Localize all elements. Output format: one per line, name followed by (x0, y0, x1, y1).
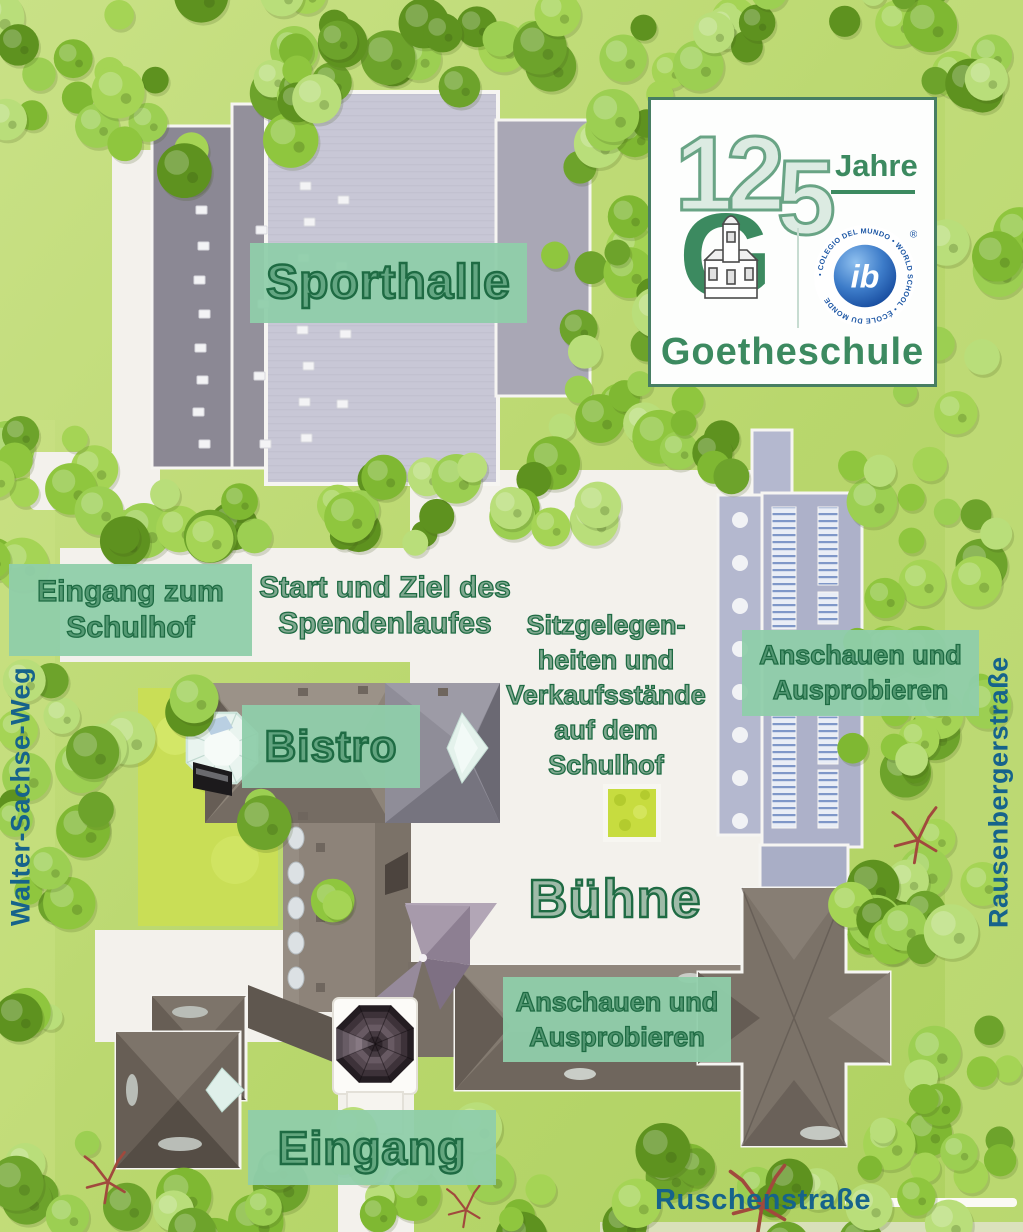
label-line: Eingang zum (37, 574, 224, 610)
street-name: Rausenbergerstraße (984, 656, 1015, 928)
label-entrance-courtyard: Eingang zum Schulhof (9, 564, 252, 656)
anniversary-badge: 125 Jahre G • COLEGIO DEL MUNDO • WORLD … (648, 97, 937, 387)
label-seating: Sitzgelegen- heiten und Verkaufsstände a… (500, 608, 712, 783)
label-look-try-east: Anschauen und Ausprobieren (742, 630, 979, 716)
label-line: Anschauen und (516, 985, 719, 1020)
ib-registered-mark: ® (910, 230, 917, 241)
badge-underline (831, 190, 915, 194)
label-stage-text: Bühne (505, 872, 725, 926)
street-walter-sachse-weg: Walter-Sachse-Weg (2, 650, 40, 942)
label-line: Ausprobieren (529, 1020, 705, 1055)
tower-roof (336, 1005, 414, 1083)
street-ruschenstrasse: Ruschenstraße (655, 1184, 870, 1217)
label-sporthalle: Sporthalle (250, 243, 527, 323)
street-name: Walter-Sachse-Weg (6, 666, 37, 925)
badge-divider (797, 228, 799, 328)
label-line: heiten und (500, 643, 712, 678)
label-line: auf dem (500, 713, 712, 748)
label-line: Anschauen und (759, 638, 962, 673)
label-sporthalle-text: Sporthalle (266, 259, 511, 307)
label-look-try-south: Anschauen und Ausprobieren (503, 977, 731, 1062)
ib-text: ib (851, 258, 880, 294)
campus-map: Sporthalle Eingang zum Schulhof Start un… (0, 0, 1023, 1232)
label-entrance-text: Eingang (278, 1125, 466, 1171)
label-entrance: Eingang (248, 1110, 496, 1185)
label-line: Schulhof (500, 748, 712, 783)
label-bistro: Bistro (242, 705, 420, 788)
label-line: Spendenlaufes (253, 606, 517, 642)
seating-patch (603, 784, 661, 842)
label-line: Verkaufsstände (500, 678, 712, 713)
label-line: Ausprobieren (773, 673, 949, 708)
label-stage: Bühne (505, 872, 725, 926)
label-line: Schulhof (66, 610, 194, 646)
ib-world-school-logo: • COLEGIO DEL MUNDO • WORLD SCHOOL • ÉCO… (813, 224, 917, 328)
school-building-icon (703, 212, 759, 302)
street-rausenbergerstrasse: Rausenbergerstraße (980, 638, 1018, 946)
badge-jahre: Jahre (835, 148, 918, 184)
label-bistro-text: Bistro (264, 725, 397, 769)
label-start-finish: Start und Ziel des Spendenlaufes (253, 570, 517, 642)
street-name: Ruschenstraße (655, 1184, 871, 1216)
label-line: Sitzgelegen- (500, 608, 712, 643)
label-line: Start und Ziel des (253, 570, 517, 606)
badge-school-name: Goetheschule (651, 331, 934, 374)
